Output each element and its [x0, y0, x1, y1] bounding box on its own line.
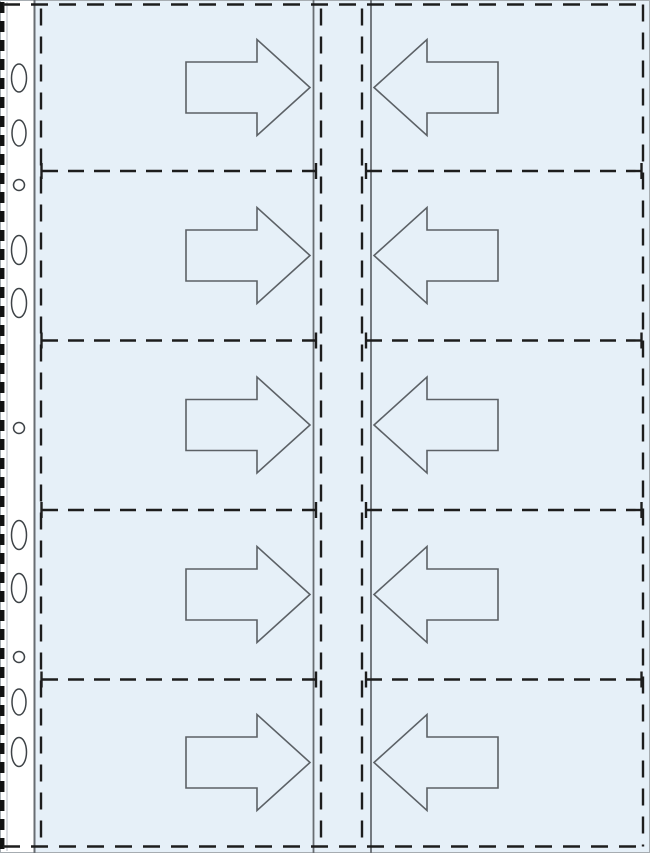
- punch-hole-oblong-8: [12, 574, 27, 603]
- punch-hole-round-6: [14, 423, 25, 434]
- punch-hole-oblong-11: [12, 738, 27, 767]
- pocket-page-diagram: [0, 0, 650, 853]
- punch-hole-oblong-1: [12, 64, 27, 92]
- pocket-film: [34, 0, 650, 853]
- punch-hole-round-9: [14, 652, 25, 663]
- punch-hole-round-3: [14, 180, 25, 191]
- punch-hole-oblong-2: [12, 120, 26, 146]
- punch-hole-oblong-4: [12, 236, 27, 265]
- punch-hole-oblong-5: [12, 289, 27, 318]
- punch-hole-oblong-7: [12, 521, 27, 550]
- punch-hole-oblong-10: [12, 689, 26, 715]
- pocket-page-svg: [0, 0, 650, 853]
